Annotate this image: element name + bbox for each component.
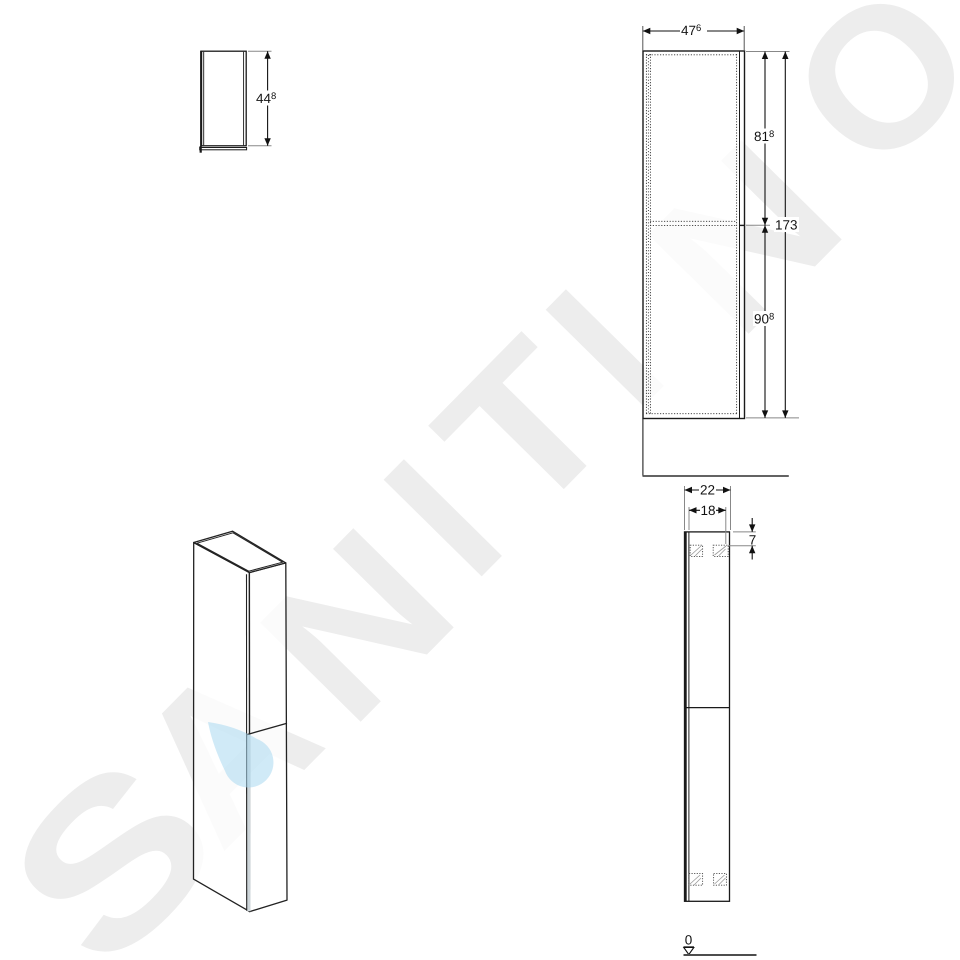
svg-text:7: 7	[749, 533, 757, 548]
svg-text:18: 18	[701, 503, 716, 518]
svg-text:22: 22	[700, 483, 715, 498]
svg-text:0: 0	[685, 933, 693, 948]
svg-text:173: 173	[775, 218, 798, 233]
